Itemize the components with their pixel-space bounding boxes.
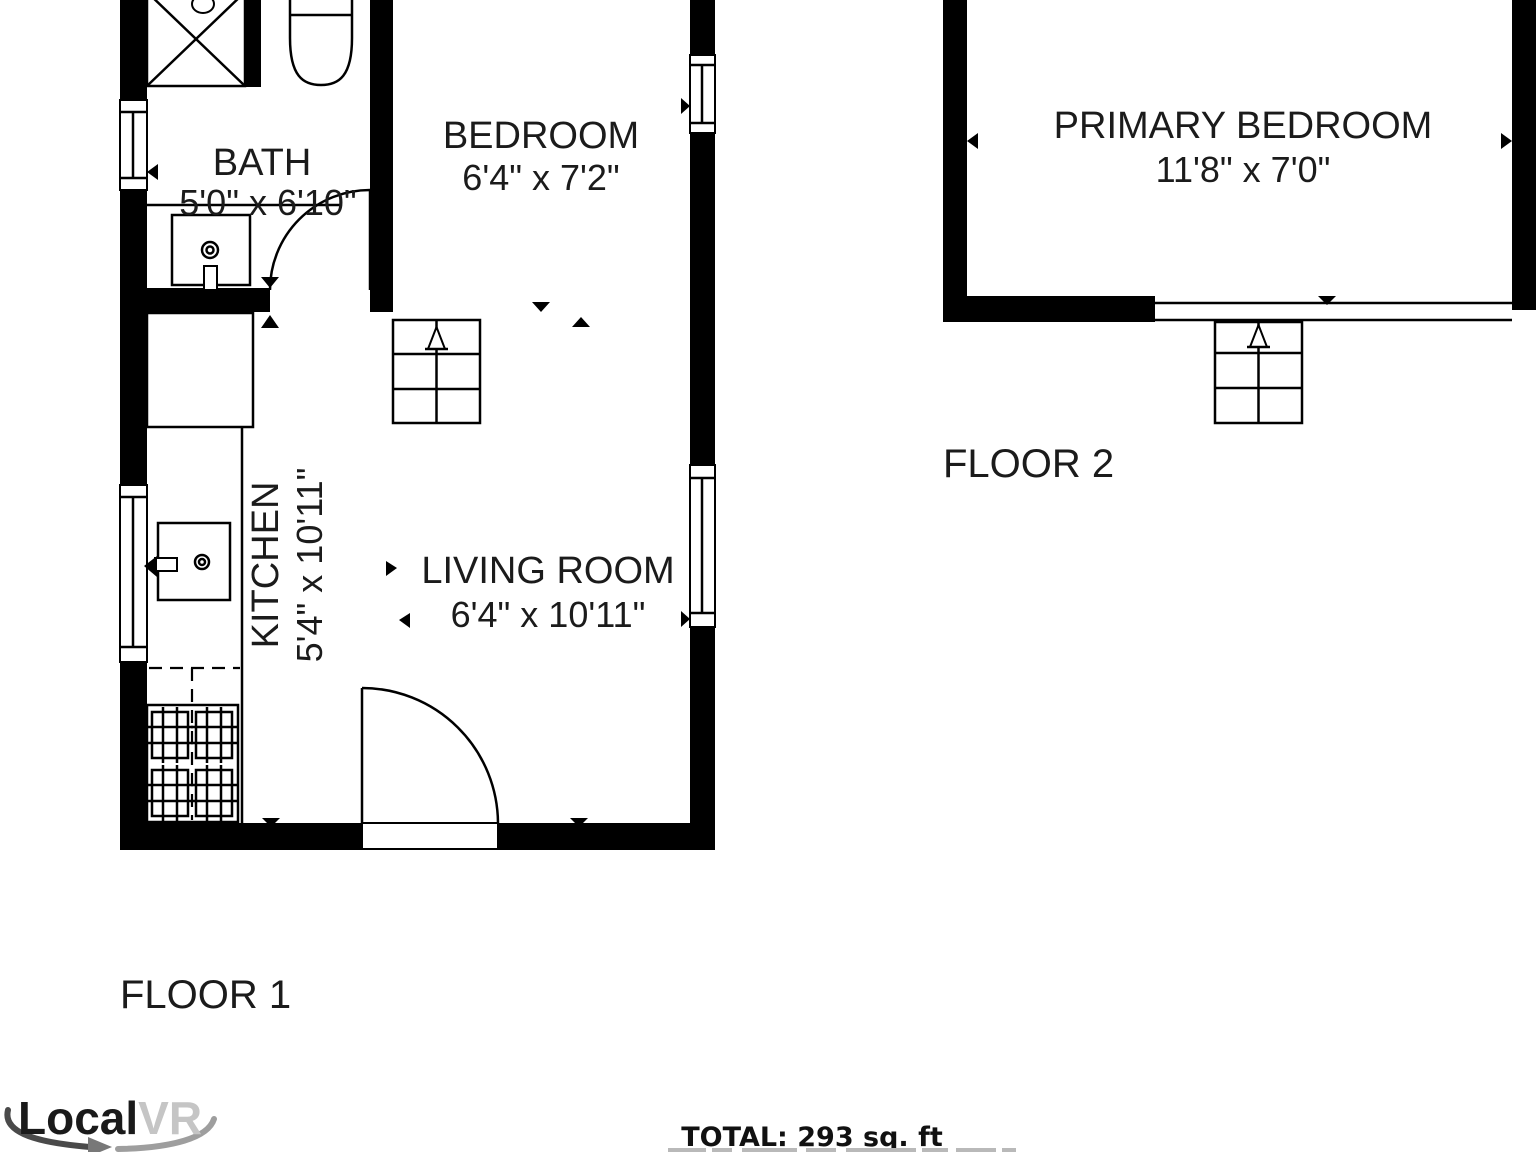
window-marker-left-upper <box>147 164 158 180</box>
bath-door-marker-top <box>261 277 279 288</box>
stairs-floor1 <box>393 320 480 423</box>
primary-bedroom-label: PRIMARY BEDROOM <box>1054 105 1433 147</box>
floor1-label: FLOOR 1 <box>120 973 291 1017</box>
kitchen-label: KITCHEN <box>245 482 287 649</box>
bedroom-marker-up <box>572 317 590 327</box>
kitchen-cabinet <box>147 313 253 427</box>
floor2-bottom-wall <box>943 296 1155 322</box>
stairs-up-arrow-icon <box>428 327 445 349</box>
floor2-marker-right <box>1501 133 1512 149</box>
window-marker-right-lower <box>681 611 690 627</box>
window-right-lower <box>690 465 715 627</box>
living-room-marker-right <box>386 561 397 576</box>
stairs2-up-arrow-icon <box>1250 325 1267 347</box>
bath-label: BATH <box>213 142 312 184</box>
logo-text: LocalVR <box>18 1092 202 1144</box>
window-right-upper <box>690 55 715 133</box>
bath-bedroom-wall <box>370 0 393 312</box>
bedroom-dimensions: 6'4" x 7'2" <box>462 157 619 198</box>
floor2-right-wall <box>1512 0 1536 310</box>
total-area-text: TOTAL: 293 sq. ft <box>681 1122 943 1152</box>
entry-threshold <box>362 823 498 849</box>
floor2-marker-left <box>967 133 978 149</box>
window-left-lower <box>120 485 147 662</box>
window-marker-right-upper <box>681 98 690 114</box>
primary-bedroom-dimensions: 11'8" x 7'0" <box>1156 149 1331 190</box>
entry-door-arc <box>362 688 498 823</box>
living-room-dimensions: 6'4" x 10'11" <box>451 594 646 635</box>
kitchen-sink <box>144 523 230 600</box>
bath-door-marker-bottom <box>261 315 279 328</box>
floor2-left-wall <box>943 0 967 322</box>
floor-plan-page: { "floor1": { "label": "FLOOR 1", "bath"… <box>0 0 1536 1152</box>
living-room-label: LIVING ROOM <box>421 550 674 592</box>
floor2-plan: PRIMARY BEDROOM 11'8" x 7'0" FLOOR 2 <box>943 0 1536 486</box>
floor2-label: FLOOR 2 <box>943 442 1114 486</box>
kitchen-dimensions: 5'4" x 10'11" <box>289 468 330 663</box>
floor1-plan: BATH 5'0" x 6'10" BEDROOM 6'4" x 7'2" KI… <box>120 0 715 1017</box>
toilet <box>290 0 352 85</box>
bedroom-marker-down <box>532 302 550 312</box>
bedroom-label: BEDROOM <box>443 115 639 157</box>
shower-stub-wall <box>245 0 261 87</box>
bath-sink <box>172 215 250 290</box>
shower <box>147 0 245 86</box>
floor-plan-canvas: BATH 5'0" x 6'10" BEDROOM 6'4" x 7'2" KI… <box>0 0 1536 1152</box>
logo: LocalVR <box>7 1092 214 1152</box>
window-left-upper <box>120 100 147 190</box>
stairs-floor2 <box>1215 322 1302 423</box>
bath-dimensions: 5'0" x 6'10" <box>179 182 356 223</box>
living-room-marker-left <box>399 613 410 628</box>
bath-kitchen-wall <box>120 288 270 312</box>
